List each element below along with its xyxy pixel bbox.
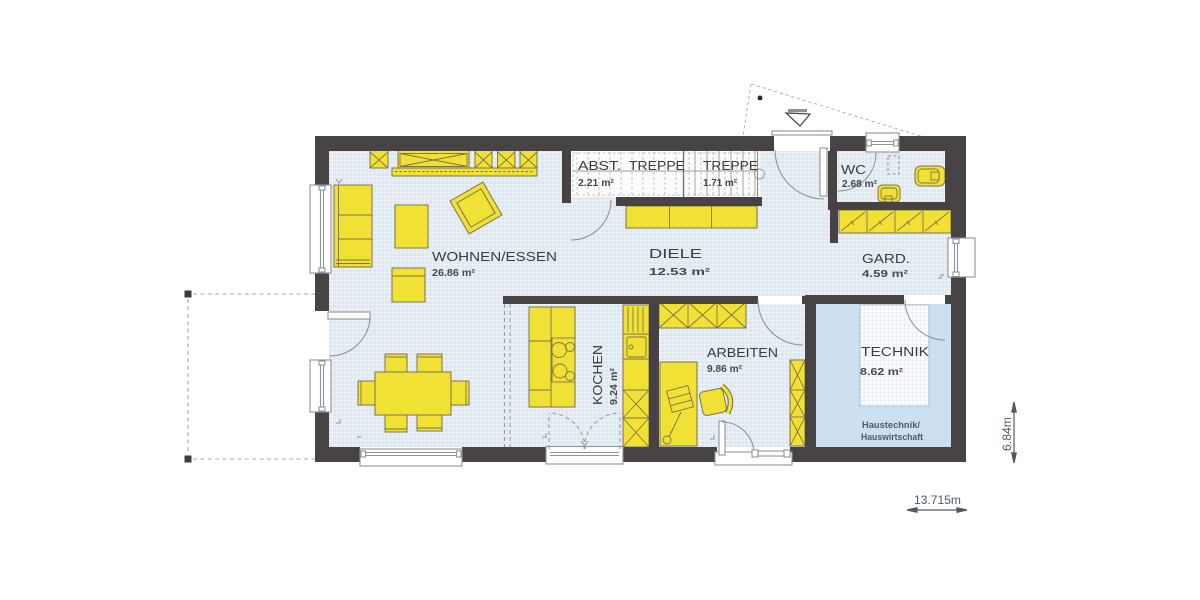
svg-text:GARD.: GARD. [862,251,910,266]
svg-text:9.86 m²: 9.86 m² [707,363,742,375]
svg-text:TECHNIK: TECHNIK [861,344,929,359]
svg-text:TREPPE: TREPPE [703,158,758,173]
svg-text:13.715m: 13.715m [914,493,961,507]
svg-text:2.68 m²: 2.68 m² [842,178,877,190]
svg-text:8.62 m²: 8.62 m² [860,366,904,378]
svg-text:6.84m: 6.84m [1000,417,1014,451]
svg-text:WOHNEN/ESSEN: WOHNEN/ESSEN [432,249,557,264]
svg-text:1.71 m²: 1.71 m² [703,177,737,189]
svg-text:TREPPE: TREPPE [629,158,685,173]
svg-text:Hauswirtschaft: Hauswirtschaft [861,432,923,442]
svg-text:ARBEITEN: ARBEITEN [707,345,778,360]
svg-text:26.86 m²: 26.86 m² [432,267,476,279]
svg-text:12.53 m²: 12.53 m² [649,266,711,278]
svg-text:2.21 m²: 2.21 m² [578,177,614,189]
svg-text:KOCHEN: KOCHEN [590,345,605,405]
svg-text:4.59 m²: 4.59 m² [862,268,909,280]
svg-text:ABST.: ABST. [578,158,621,173]
svg-text:WC: WC [841,162,866,177]
svg-text:DIELE: DIELE [649,246,702,261]
svg-text:9.24 m²: 9.24 m² [608,367,620,405]
svg-text:Haustechnik/: Haustechnik/ [862,420,921,430]
